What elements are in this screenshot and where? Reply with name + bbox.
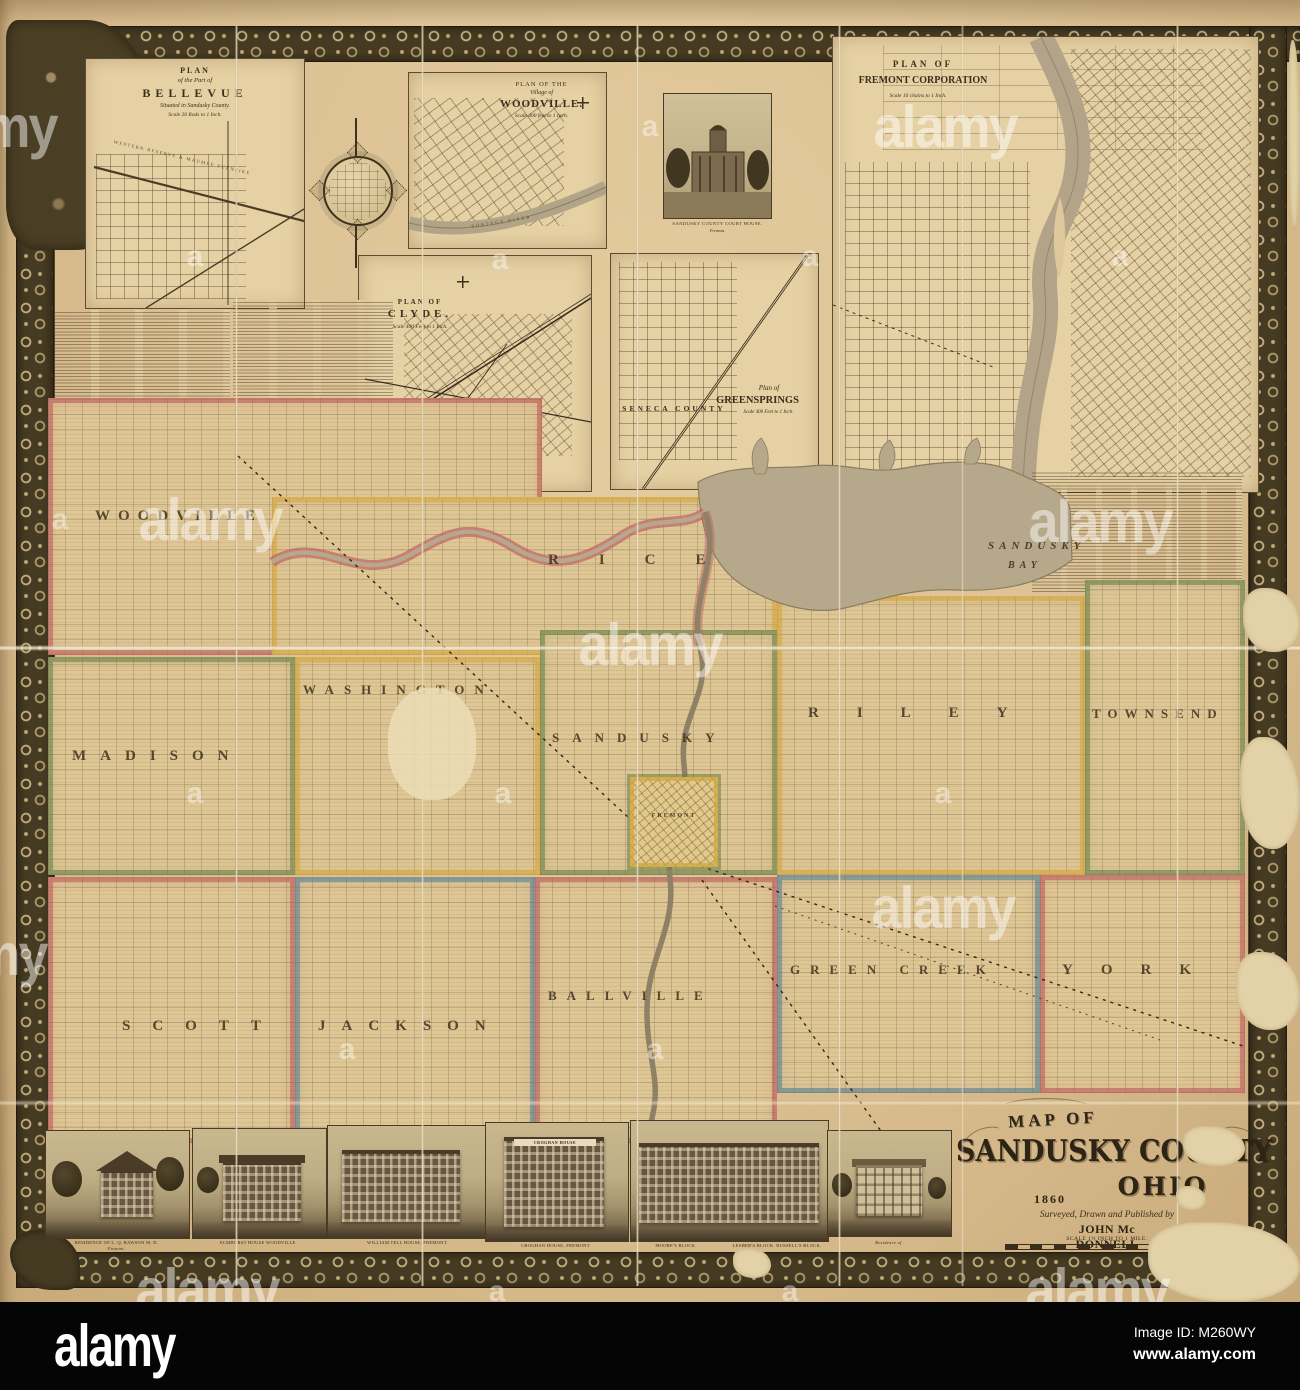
residence-ground bbox=[828, 1220, 951, 1236]
caption-leshers-block: LESHER'S BLOCK. BUSSELL'S BLOCK. bbox=[722, 1243, 832, 1249]
commercial-block-ground bbox=[631, 1225, 828, 1241]
torn-edge bbox=[1236, 952, 1300, 1030]
vignette-elmhurst-house bbox=[192, 1128, 327, 1239]
croghan-sign: CROGHAN HOUSE bbox=[514, 1139, 596, 1146]
label-scott: SCOTT bbox=[122, 1018, 283, 1035]
watermark-small: a bbox=[647, 1033, 664, 1067]
fold-crease bbox=[838, 26, 841, 1286]
croghan-ground bbox=[486, 1225, 628, 1241]
caption-elmhurst: ELMHURST HOUSE WOODVILLE. bbox=[192, 1240, 325, 1246]
globe-compass-ornament bbox=[323, 156, 393, 226]
vignette-william-tell-house bbox=[327, 1125, 490, 1239]
caption-rawson: RESIDENCE OF L. Q. RAWSON M. D. bbox=[45, 1240, 188, 1246]
torn-edge bbox=[1243, 588, 1300, 652]
township-townsend bbox=[1085, 580, 1245, 875]
william-tell-ground bbox=[328, 1222, 489, 1238]
township-madison bbox=[48, 657, 295, 875]
cartouche-byline: Surveyed, Drawn and Published by bbox=[1027, 1210, 1187, 1220]
tree-icon bbox=[52, 1161, 82, 1197]
tree-icon bbox=[156, 1157, 184, 1191]
watermark-small: a bbox=[187, 777, 204, 811]
woodville-compass-icon bbox=[577, 97, 589, 109]
rawson-house bbox=[101, 1169, 153, 1217]
watermark: alamy bbox=[871, 874, 1014, 942]
vignette-columned-residence bbox=[827, 1130, 952, 1237]
township-riley bbox=[777, 596, 1085, 875]
watermark: alamy bbox=[0, 93, 57, 161]
vignette-commercial-blocks bbox=[630, 1120, 829, 1242]
watermark: alamy bbox=[138, 486, 281, 554]
clyde-compass-icon bbox=[457, 276, 469, 288]
tree-icon bbox=[928, 1177, 946, 1199]
label-york: YORK bbox=[1062, 962, 1219, 979]
watermark: alamy bbox=[1028, 488, 1171, 556]
vignette-rawson-residence bbox=[45, 1130, 190, 1239]
watermark: alamy bbox=[0, 921, 47, 989]
label-fremont-town: FREMONT bbox=[630, 813, 718, 821]
label-sandusky: SANDUSKY bbox=[552, 730, 728, 746]
rawson-ground bbox=[46, 1222, 189, 1238]
label-riley: RILEY bbox=[808, 705, 1046, 722]
cartouche-state: OHIO bbox=[1098, 1172, 1228, 1201]
caption-william-tell: WILLIAM TELL HOUSE, FREMONT. bbox=[327, 1240, 488, 1246]
fremont-street-grid-west bbox=[845, 162, 1030, 472]
tree-icon bbox=[832, 1173, 852, 1197]
courthouse-caption: SANDUSKY COUNTY COURT HOUSE. bbox=[645, 221, 790, 227]
greensprings-scale: Scale 400 Feet to 1 Inch. bbox=[721, 410, 816, 416]
image-id-text: Image ID: M260WY bbox=[1134, 1324, 1256, 1340]
fold-crease bbox=[421, 26, 424, 1286]
watermark: alamy bbox=[873, 93, 1016, 161]
label-townsend: TOWNSEND bbox=[1092, 706, 1224, 722]
fold-crease bbox=[235, 26, 238, 1286]
caption-rawson-town: Fremont. bbox=[45, 1246, 188, 1251]
woodville-street-grid bbox=[414, 98, 564, 226]
residence-building bbox=[856, 1165, 922, 1216]
rawson-roof bbox=[96, 1151, 158, 1171]
bellevue-street-grid bbox=[96, 154, 246, 299]
inset-plan-greensprings: Plan of GREENSPRINGS Scale 400 Feet to 1… bbox=[610, 253, 819, 490]
courthouse-vignette bbox=[663, 93, 772, 219]
worn-spot bbox=[388, 688, 476, 800]
watermark: alamy bbox=[578, 611, 721, 679]
watermark-small: a bbox=[495, 777, 512, 811]
alamy-website-link[interactable]: www.alamy.com bbox=[1133, 1346, 1256, 1364]
watermark-small: a bbox=[802, 240, 819, 274]
torn-edge bbox=[1288, 40, 1300, 230]
greensprings-title: Plan of bbox=[729, 384, 809, 393]
courthouse-drawing bbox=[664, 94, 771, 218]
business-directory-center bbox=[233, 300, 393, 412]
bellevue-location: Situated in Sandusky County. bbox=[86, 103, 304, 111]
alamy-footer-bar: alamy Image ID: M260WY www.alamy.com bbox=[0, 1302, 1300, 1390]
torn-patch bbox=[1176, 1186, 1206, 1210]
alamy-logo[interactable]: alamy bbox=[54, 1310, 174, 1380]
torn-edge bbox=[1240, 737, 1300, 849]
caption-croghan: CROGHAN HOUSE, FREMONT. bbox=[485, 1243, 627, 1249]
fremont-street-grid-east bbox=[1071, 49, 1251, 477]
watermark-small: a bbox=[52, 503, 69, 537]
label-ballville: BALLVILLE bbox=[548, 988, 713, 1004]
tree-icon bbox=[197, 1167, 219, 1193]
watermark-small: a bbox=[1112, 240, 1129, 274]
watermark-small: a bbox=[339, 1033, 356, 1067]
bellevue-title: PLAN bbox=[86, 66, 304, 76]
bellevue-scale: Scale 20 Rods to 1 Inch. bbox=[86, 112, 304, 119]
courthouse-caption-town: Fremont. bbox=[645, 228, 790, 233]
stock-photo-page: PLAN of the Part of BELLEVUE Situated in… bbox=[0, 0, 1300, 1390]
watermark-small: a bbox=[935, 777, 952, 811]
watermark-small: a bbox=[187, 240, 204, 274]
label-madison: MADISON bbox=[72, 748, 243, 765]
caption-residence: Residence of bbox=[827, 1240, 950, 1246]
fold-crease bbox=[961, 26, 964, 1286]
commercial-block-building bbox=[639, 1143, 819, 1223]
fremont-town-plat: FREMONT bbox=[630, 777, 718, 867]
william-tell-building bbox=[342, 1150, 460, 1222]
caption-moores-block: MOORE'S BLOCK. bbox=[630, 1243, 722, 1249]
cartouche-year: 1860 bbox=[1028, 1192, 1072, 1207]
bellevue-name: BELLEVUE bbox=[86, 86, 304, 101]
township-york bbox=[1040, 875, 1245, 1093]
woodville-title: PLAN OF THE bbox=[479, 81, 604, 89]
vignette-croghan-house: CROGHAN HOUSE bbox=[485, 1122, 629, 1242]
label-greencreek: GREEN CREEK bbox=[790, 962, 996, 978]
paper-top-shading bbox=[0, 0, 1300, 24]
watermark-small: a bbox=[642, 110, 659, 144]
croghan-building bbox=[504, 1137, 604, 1227]
fold-crease bbox=[1176, 26, 1179, 1286]
inset-plan-woodville: PLAN OF THE Village of WOODVILLE. Scale … bbox=[408, 72, 607, 249]
globe-graticule bbox=[329, 162, 387, 220]
fold-crease-horizontal bbox=[0, 1100, 1300, 1106]
elmhurst-ground bbox=[193, 1222, 326, 1238]
bellevue-subtitle: of the Part of bbox=[86, 77, 304, 85]
label-rice: RICE bbox=[548, 552, 746, 569]
map-paper: PLAN of the Part of BELLEVUE Situated in… bbox=[0, 0, 1300, 1302]
watermark-small: a bbox=[492, 243, 509, 277]
label-washington: WASHINGTON bbox=[303, 682, 494, 698]
label-sandusky-bay-2: BAY bbox=[1008, 560, 1042, 571]
